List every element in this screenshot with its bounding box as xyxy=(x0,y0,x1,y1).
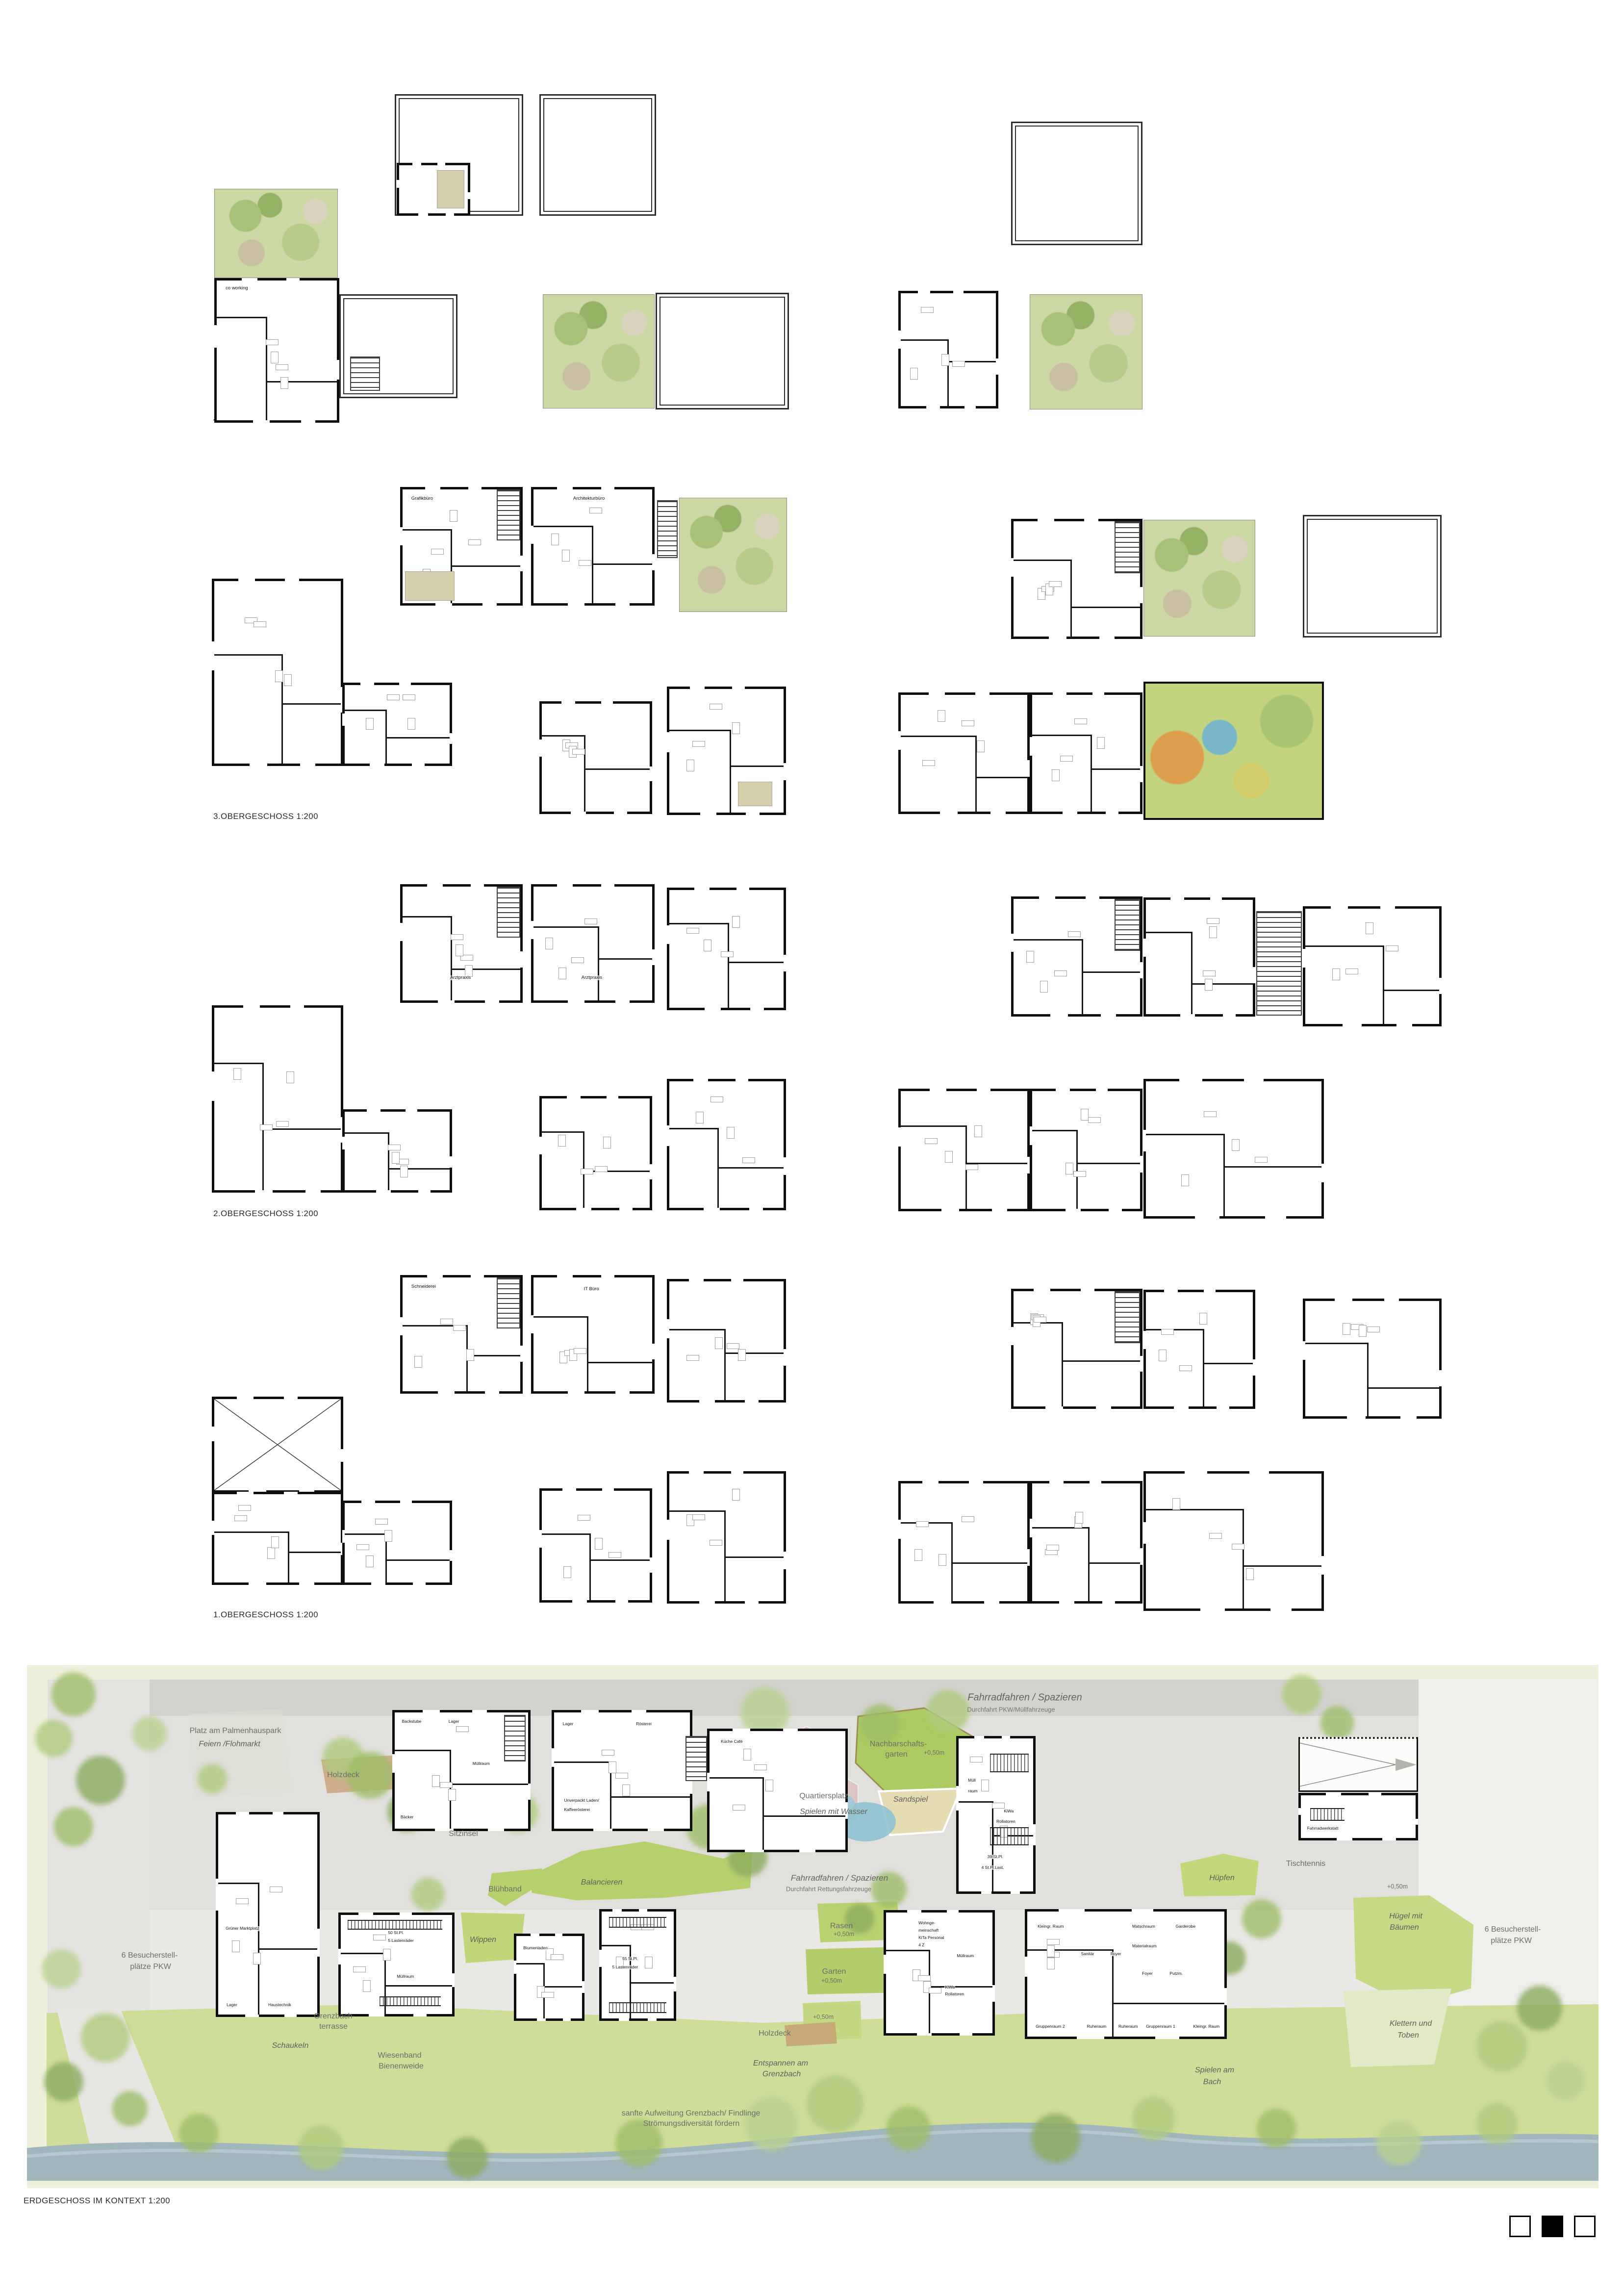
site-annotation: +0,50m xyxy=(813,2014,834,2020)
room-label: Lager xyxy=(448,1719,460,1724)
room-label: Müll xyxy=(967,1778,976,1783)
room-label: Arztpraxis xyxy=(581,975,603,980)
room-label: Unverpackt Laden/ xyxy=(563,1798,599,1803)
room-label: co working xyxy=(225,286,248,291)
room-label: Grafikbüro xyxy=(411,496,433,501)
site-annotation: Toben xyxy=(1397,2031,1419,2040)
sheet-page-markers xyxy=(0,0,1624,2296)
room-label: Lager xyxy=(226,2003,238,2007)
site-annotation: +0,50m xyxy=(821,1977,842,1984)
room-label: Lager xyxy=(562,1722,574,1726)
room-label: Wohnge- xyxy=(918,1921,936,1925)
room-label: Kaffeerösterei xyxy=(563,1808,590,1812)
room-label: Sanitär xyxy=(1081,1952,1095,1956)
room-label: Bäcker xyxy=(400,1815,414,1819)
room-label: Müllraum xyxy=(397,1974,415,1979)
room-label: Schneiderei xyxy=(411,1284,436,1289)
site-annotation: Wippen xyxy=(470,1936,496,1944)
sheet-marker-outline xyxy=(1509,2216,1531,2237)
site-annotation: +0,50m xyxy=(1387,1883,1408,1890)
site-annotation: Garten xyxy=(822,1967,846,1976)
room-label: Gruppenraum 1 xyxy=(1145,2024,1176,2029)
site-annotation: 6 Besucherstell- xyxy=(122,1951,178,1960)
site-annotation: Bienenweide xyxy=(379,2062,424,2071)
site-annotation: Feiern /Flohmarkt xyxy=(199,1740,260,1749)
room-label: Müllraum xyxy=(472,1761,490,1766)
sheet-marker-outline xyxy=(1574,2216,1596,2237)
room-label: Haustechnik xyxy=(268,2003,292,2007)
room-label: KiWa xyxy=(944,1985,955,1990)
room-label: raum xyxy=(967,1789,978,1793)
sheet-marker-filled xyxy=(1542,2216,1563,2237)
site-annotation: terrasse xyxy=(319,2022,348,2031)
site-annotation: Fahrradfahren / Spazieren xyxy=(967,1692,1082,1704)
site-annotation: plätze PKW xyxy=(130,1963,171,1971)
room-label: Müllraum xyxy=(956,1954,974,1958)
room-label: 5 Lastenräder xyxy=(612,1965,638,1969)
site-annotation: Sitzinsel xyxy=(449,1830,478,1838)
room-label: Rösterei xyxy=(635,1722,652,1726)
room-label: Rollatoren xyxy=(944,1992,964,1996)
room-label: Backstube xyxy=(402,1719,422,1724)
site-annotation: Schaukeln xyxy=(272,2041,309,2050)
site-annotation: garten xyxy=(885,1750,907,1759)
room-label: 4 St.Pl.Last. xyxy=(981,1865,1005,1870)
room-label: KiWa xyxy=(1003,1809,1014,1813)
room-label: Rollatoren xyxy=(996,1819,1016,1824)
site-annotation: Balancieren xyxy=(581,1878,623,1887)
room-label: Arztpraxis xyxy=(450,975,471,980)
site-annotation: Strömungsdiversität fördern xyxy=(643,2119,740,2128)
room-label: 50 St.Pl. xyxy=(387,1931,404,1935)
site-annotation: Bäumen xyxy=(1390,1923,1419,1932)
site-annotation: Bach xyxy=(1203,2078,1221,2087)
room-label: Ruheraum xyxy=(1087,2024,1107,2029)
room-label: Materialraum xyxy=(1132,1944,1157,1948)
room-label: Garderobe xyxy=(1175,1924,1196,1929)
site-annotation: Rasen xyxy=(830,1922,853,1931)
site-annotation: Platz am Palmenhauspark xyxy=(190,1727,281,1735)
room-label: Architekturbüro xyxy=(573,496,605,501)
site-annotation: Grenzbach xyxy=(762,2070,801,2079)
site-annotation: Holzdeck xyxy=(327,1771,359,1780)
site-annotation: Entspannen am xyxy=(753,2059,808,2068)
site-annotation: Fahrradfahren / Spazieren xyxy=(791,1873,888,1883)
room-label: 55 St.Pl. xyxy=(622,1957,638,1961)
room-label: Foyer xyxy=(1142,1971,1153,1976)
site-annotation: Durchfahrt PKW/Müllfahrzeuge xyxy=(967,1706,1055,1713)
room-label: Fahrradwerkstatt xyxy=(1307,1826,1339,1831)
room-label: Küche Café xyxy=(720,1739,743,1744)
room-label: Putzm. xyxy=(1169,1971,1183,1976)
site-annotation: Holzdeck xyxy=(759,2029,791,2038)
room-label: Ruheraum xyxy=(1118,2024,1139,2029)
site-annotation: plätze PKW xyxy=(1491,1937,1532,1945)
room-label: Gruppenraum 2 xyxy=(1035,2024,1066,2029)
site-annotation: +0,50m xyxy=(834,1931,854,1938)
room-label: 5 Lastenräder xyxy=(387,1939,414,1943)
room-label: Grüner Marktplatz xyxy=(225,1926,259,1931)
site-annotation: Spielen am xyxy=(1195,2066,1234,2075)
room-label: Kleingr. Raum xyxy=(1037,1924,1064,1929)
room-label: meinschaft xyxy=(918,1928,939,1933)
room-label: IT Büro xyxy=(584,1287,600,1292)
room-label: Foyer xyxy=(1110,1952,1122,1956)
room-label: 39 St.Pl. xyxy=(987,1855,1004,1859)
site-annotation: Sandspiel xyxy=(893,1795,928,1804)
site-annotation: Hügel mit xyxy=(1389,1912,1422,1921)
site-annotation: Klettern und xyxy=(1390,2019,1432,2028)
site-annotation: +0,50m xyxy=(924,1749,944,1756)
site-annotation: Grenzbach- xyxy=(314,2012,355,2021)
room-label: 4 Z xyxy=(918,1943,925,1947)
site-annotation: Hüpfen xyxy=(1209,1874,1235,1883)
room-label: Blumenladen xyxy=(523,1946,548,1950)
site-annotation: Durchfahrt Rettungsfahrzeuge xyxy=(786,1886,871,1893)
room-label: KiTa Personal xyxy=(918,1936,944,1940)
site-annotation: Wiesenband xyxy=(378,2051,422,2060)
site-annotation: Quartiersplatz xyxy=(799,1792,848,1801)
site-annotation: sanfte Aufweitung Grenzbach/ Findlinge xyxy=(622,2109,761,2118)
site-annotation: Spielen mit Wasser xyxy=(800,1808,867,1816)
room-label: Kleingr. Raum xyxy=(1193,2024,1220,2029)
room-label: Matschraum xyxy=(1132,1924,1156,1929)
site-annotation: Blühband xyxy=(488,1885,522,1894)
architecture-sheet: 4.OBERGESCHOSS 1:200co working3.OBERGESC… xyxy=(0,0,1624,2296)
site-annotation: Nachbarschafts- xyxy=(870,1740,927,1749)
site-annotation: 6 Besucherstell- xyxy=(1485,1925,1541,1934)
site-annotation: Tischtennis xyxy=(1286,1860,1325,1868)
